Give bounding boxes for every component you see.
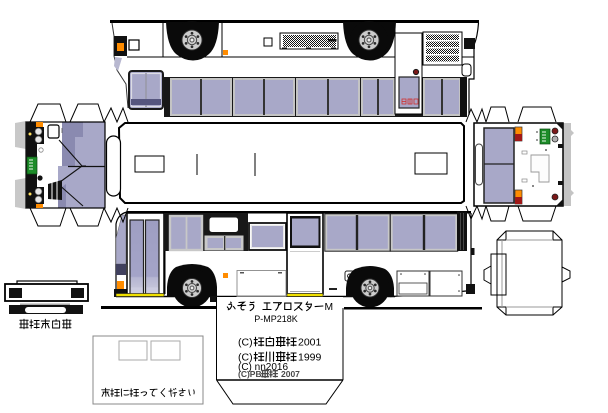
svg-text:P-MP218K: P-MP218K (254, 314, 298, 324)
svg-text:(C): (C) (238, 337, 253, 349)
svg-text:M: M (325, 302, 334, 313)
svg-text:(C)PB: (C)PB (238, 369, 262, 379)
svg-text:1999: 1999 (298, 352, 322, 364)
svg-text:2007: 2007 (281, 369, 300, 379)
svg-text:2001: 2001 (298, 337, 322, 349)
